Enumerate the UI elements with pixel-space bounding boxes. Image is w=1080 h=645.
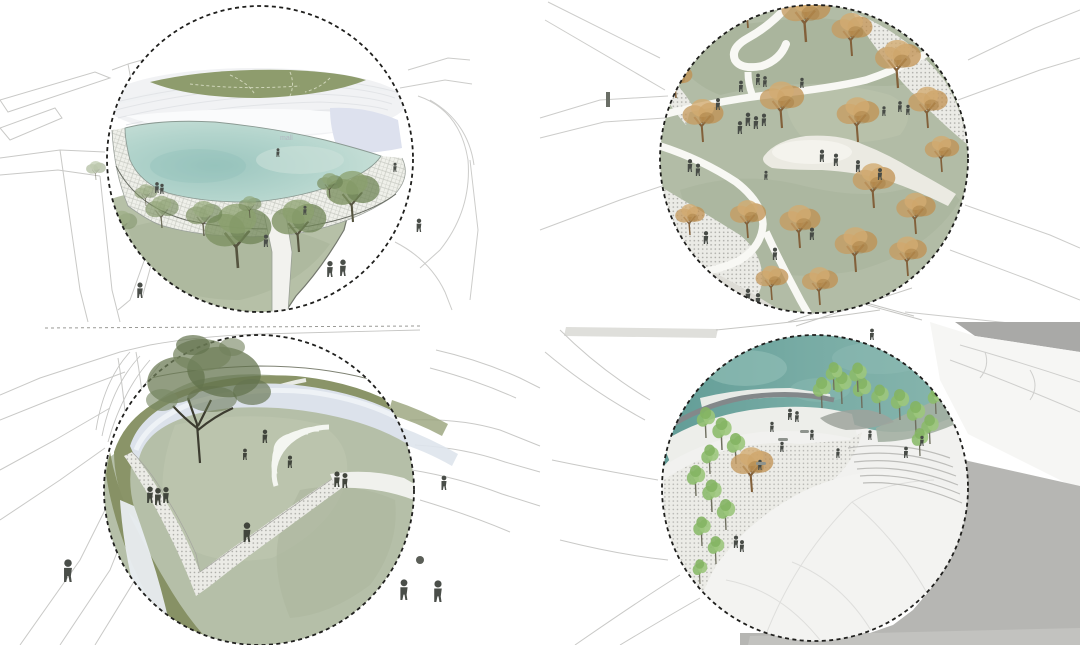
svg-text:mall: mall — [280, 135, 293, 142]
